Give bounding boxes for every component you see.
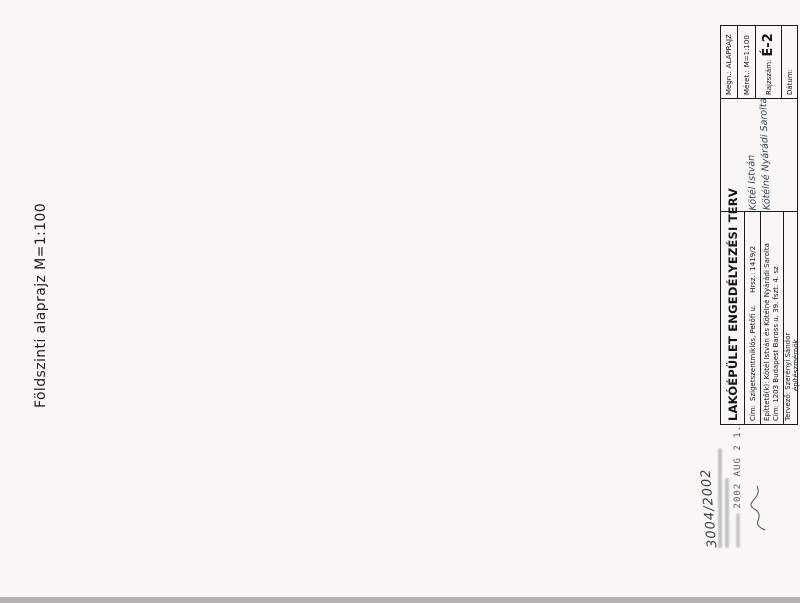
client-label: Építtető(k): [763,381,771,421]
drawing-no-label: Rajzszám: [765,60,773,95]
title-block-right: Megn.: ALAPRAJZ Méret.: M=1:100 Rajzszám… [721,26,797,99]
client-address-label: Cím: [772,405,780,421]
scanned-floorplan-sheet: { "sheet": { "plan_title": "Földszinti a… [0,0,800,603]
parcel-number: Hrsz.: 1419/2 [749,246,757,293]
site-row: Cím: Szigetszentmiklós, Petőfi u. Hrsz.:… [745,212,761,424]
stamp-illegible-line [725,478,729,548]
floor-plan-svg [0,0,800,603]
approval-stamp: 3004/2002 2002 AUG 2 1. [700,425,790,548]
designer-row: Tervező: Szerényi Sándor építészmérnök [784,212,798,424]
title-block-box: LAKÓÉPÜLET ENGEDÉLYEZÉSI TERV Cím: Szige… [720,25,798,425]
client-address-value: 1203 Budapest Baross u. 39. fszt. 4. sz [772,266,780,402]
stamp-illegible-line [718,448,722,548]
designer-value: Szerényi Sándor [784,333,792,390]
signature-2: Kötélné Nyárádi Sarolta [757,102,775,210]
drawing-name-label: Megn.: [725,71,733,95]
site-label: Cím: [749,405,757,421]
project-title: LAKÓÉPÜLET ENGEDÉLYEZÉSI TERV [721,212,745,424]
designer-title: építészmérnök [792,339,800,391]
paper-sheet: Földszinti alaprajz M=1:100 LAKÓÉPÜLET E… [0,0,800,597]
client-value: Kötél István és Kötélné Nyárádi Sarolta [763,243,771,379]
drawing-no: É-2 [761,33,776,56]
drawing-title: Földszinti alaprajz M=1:100 [33,196,55,408]
client-row: Építtető(k): Kötél István és Kötélné Nyá… [761,212,784,424]
stamp-date: 2002 AUG 2 1. [733,425,743,508]
signature-squiggle [743,428,771,548]
scale-label: Méret.: [743,70,751,95]
site-value: Szigetszentmiklós, Petőfi u. [749,305,757,401]
title-block-left: LAKÓÉPÜLET ENGEDÉLYEZÉSI TERV Cím: Szige… [721,211,797,424]
designer-label: Tervező: [784,392,792,421]
date-label: Dátum: [786,69,794,95]
stamp-illegible-label [736,513,740,548]
scale-value: M=1:100 [743,35,751,67]
client-signatures: Kötél István Kötélné Nyárádi Sarolta [743,101,797,211]
drawing-name: ALAPRAJZ [725,34,733,68]
